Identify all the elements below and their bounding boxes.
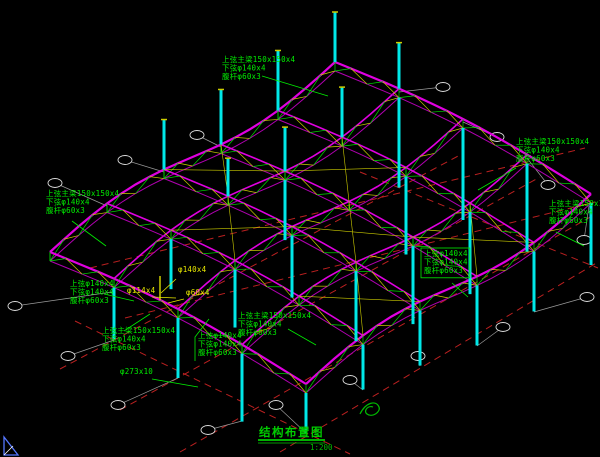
drawing-title: 结构布置图 <box>258 425 324 439</box>
chord-label-mid-line: 腹杆φ60x3 <box>198 347 237 357</box>
drawing-canvas[interactable]: 上弦主梁150x150x4下弦φ140x4腹杆φ60x3上弦主梁150x150x… <box>0 0 600 457</box>
revision-squiggle <box>360 403 379 415</box>
grid-bubble <box>190 131 221 148</box>
title-block: 结构布置图 1:200 <box>258 425 333 452</box>
member-label-bottom-mid: 上弦主梁150x150x4下弦φ140x4腹杆φ60x3 <box>238 310 316 345</box>
chord-label-boxed-line: 下弦φ140x4 <box>424 257 468 267</box>
member-label-right-upper-line: 上弦主梁150x150x4 <box>516 136 590 146</box>
chord-label-left-line: 下弦φ140x4 <box>70 287 114 297</box>
chord-label-boxed-line: 上弦φ140x4 <box>424 248 468 258</box>
grid-bubble <box>343 376 363 391</box>
pipe-label-273-line: φ273x10 <box>120 367 153 376</box>
chord-label-mid-line: 下弦φ140x4 <box>198 339 242 349</box>
member-label-left-line: 腹杆φ60x3 <box>46 205 85 215</box>
pipe-label-60-line: φ60x4 <box>186 288 210 297</box>
member-label-bottom-left-line: 上弦主梁150x150x4 <box>102 325 176 335</box>
pipe-label-114-line: φ114x4 <box>127 286 156 295</box>
member-label-right-edge-line: 上弦主梁150x150x4 <box>549 198 600 208</box>
member-label-left-line: 上弦主梁150x150x4 <box>46 188 120 198</box>
ucs-icon <box>4 437 18 455</box>
grid-bubble <box>111 378 178 410</box>
grid-bubble <box>477 323 510 347</box>
member-label-top-line: 下弦φ140x4 <box>222 63 266 73</box>
member-label-bottom-left-line: 腹杆φ60x3 <box>102 342 141 352</box>
member-label-right-edge-line: 腹杆φ60x3 <box>549 215 588 225</box>
axis-line <box>280 262 598 452</box>
member-label-bottom-mid-line: 下弦φ140x4 <box>238 319 282 329</box>
member-label-bottom-mid-line: 腹杆φ60x3 <box>238 327 277 337</box>
drawing-scale: 1:200 <box>310 443 333 452</box>
cad-viewport[interactable]: 上弦主梁150x150x4下弦φ140x4腹杆φ60x3上弦主梁150x150x… <box>0 0 600 457</box>
member-label-right-upper-line: 下弦φ140x4 <box>516 145 560 155</box>
chord-label-left-line: 腹杆φ60x3 <box>70 295 109 305</box>
pipe-label-140-line: φ140x4 <box>178 265 207 274</box>
member-label-top: 上弦主梁150x150x4下弦φ140x4腹杆φ60x3 <box>222 54 328 96</box>
member-label-bottom-mid-line: 上弦主梁150x150x4 <box>238 310 312 320</box>
member-label-right-edge-line: 下弦φ140x4 <box>549 207 593 217</box>
pipe-label-273: φ273x10 <box>120 367 198 387</box>
grid-bubble <box>399 83 450 93</box>
chord-label-mid-line: 上弦φ140x4 <box>198 330 242 340</box>
grid-bubble <box>118 156 164 173</box>
member-label-top-line: 上弦主梁150x150x4 <box>222 54 296 64</box>
grid-bubble <box>411 352 425 367</box>
member-label-left: 上弦主梁150x150x4下弦φ140x4腹杆φ60x3 <box>46 188 120 246</box>
chord-label-boxed-line: 腹杆φ60x3 <box>424 265 463 275</box>
chord-label-left-line: 上弦φ140x4 <box>70 278 114 288</box>
member-label-top-line: 腹杆φ60x3 <box>222 71 261 81</box>
member-label-left-line: 下弦φ140x4 <box>46 197 90 207</box>
member-label-right-upper-line: 腹杆φ60x3 <box>516 153 555 163</box>
member-label-bottom-left-line: 下弦φ140x4 <box>102 334 146 344</box>
